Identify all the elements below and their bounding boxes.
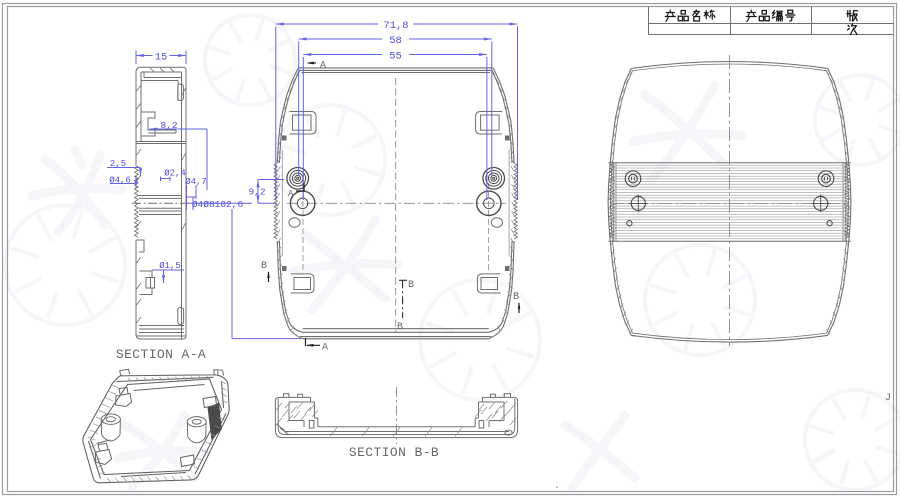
svg-text:A: A	[322, 343, 328, 354]
svg-text:15: 15	[155, 52, 168, 64]
svg-text:9,2: 9,2	[248, 187, 265, 198]
svg-text:B: B	[408, 280, 414, 291]
svg-text:B: B	[397, 322, 403, 333]
svg-text:58: 58	[389, 35, 402, 47]
svg-text:Ø4Ø8102,6: Ø4Ø8102,6	[192, 199, 244, 210]
svg-text:Ø1,5: Ø1,5	[159, 261, 181, 271]
svg-text:71,8: 71,8	[383, 20, 408, 32]
svg-text:J: J	[885, 393, 891, 404]
svg-text:A: A	[320, 61, 326, 72]
svg-text:SECTION A-A: SECTION A-A	[116, 347, 206, 362]
svg-text:SECTION B-B: SECTION B-B	[349, 445, 439, 460]
svg-text:Ø4,6: Ø4,6	[109, 176, 131, 186]
svg-text:A: A	[288, 189, 294, 199]
svg-text:B: B	[261, 261, 267, 272]
svg-text:Ø2,4: Ø2,4	[164, 169, 186, 179]
svg-text:Ø4,7: Ø4,7	[185, 177, 207, 187]
svg-text:2,5: 2,5	[110, 159, 126, 169]
svg-text:8,2: 8,2	[160, 120, 177, 131]
svg-text:B: B	[513, 292, 519, 303]
svg-text:55: 55	[389, 51, 402, 63]
